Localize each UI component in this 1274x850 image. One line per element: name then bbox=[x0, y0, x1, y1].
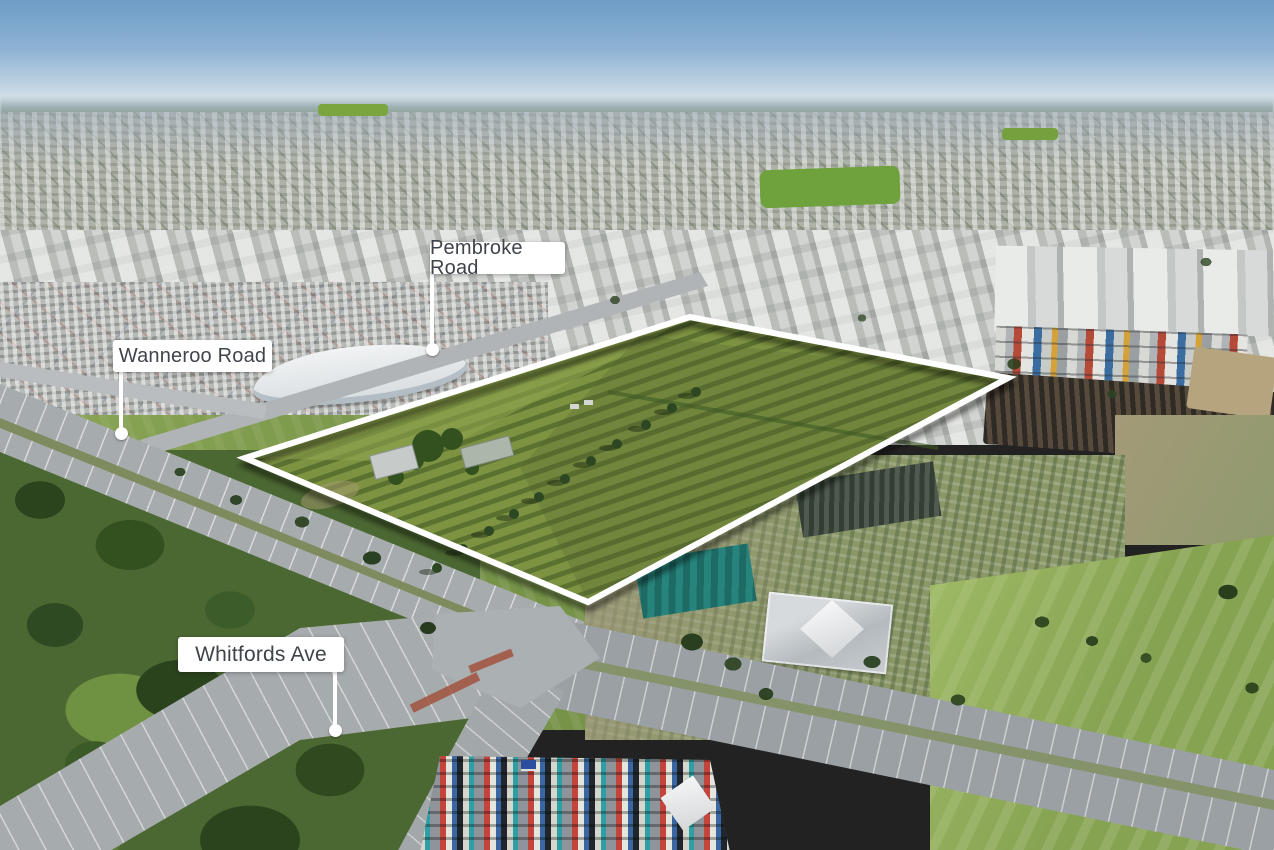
road-label-whitfords: Whitfords Ave bbox=[178, 637, 344, 672]
leader-line-pembroke bbox=[430, 273, 434, 345]
leader-dot-icon bbox=[115, 427, 128, 440]
leader-line-wanneroo bbox=[119, 371, 123, 429]
road-label-wanneroo-text: Wanneroo Road bbox=[119, 346, 267, 366]
leader-line-whitfords bbox=[333, 671, 337, 726]
property-parcel-graphic bbox=[0, 0, 1274, 850]
road-label-pembroke: Pembroke Road bbox=[430, 242, 565, 274]
road-label-pembroke-text: Pembroke Road bbox=[430, 238, 565, 278]
leader-dot-icon bbox=[329, 724, 342, 737]
leader-dot-icon bbox=[426, 343, 439, 356]
road-label-whitfords-text: Whitfords Ave bbox=[195, 644, 327, 665]
aerial-photo-canvas: Pembroke Road Wanneroo Road Whitfords Av… bbox=[0, 0, 1274, 850]
road-label-wanneroo: Wanneroo Road bbox=[113, 340, 272, 372]
